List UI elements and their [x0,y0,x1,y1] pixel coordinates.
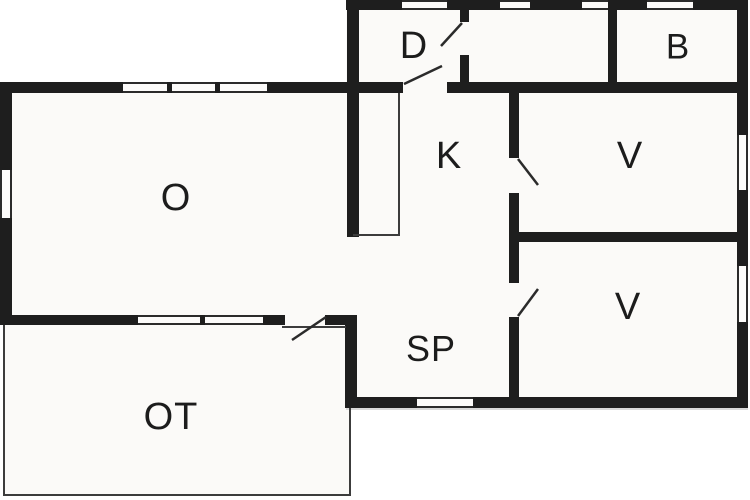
floor-plan: O OT SP K D B V V [0,0,750,500]
wall-mid-vertical [347,0,359,237]
room-label-sp: SP [406,331,456,367]
window-o-bottom-1 [138,315,200,325]
window-v-upper-right [737,135,748,190]
window-o-bottom-2 [205,315,263,325]
closet-right-edge [398,93,400,235]
window-top-1 [402,0,447,10]
closet-bottom-edge [353,234,400,236]
room-label-b: B [666,30,690,65]
wall-k-v-lower [509,317,519,397]
window-o-left [0,170,12,218]
room-label-v-upper: V [617,137,643,175]
wall-right [737,0,748,408]
wall-bottom [346,397,748,408]
window-top-4 [647,0,693,10]
room-label-o: O [161,179,192,217]
window-top-3 [582,0,608,10]
room-label-v-lower: V [615,288,641,326]
wall-b-west [608,10,617,83]
ot-wall-left [3,325,5,496]
ot-wall-right [349,408,351,496]
window-o-top-2 [172,82,215,93]
window-o-top-1 [123,82,167,93]
ot-wall-bottom [3,494,351,496]
wall-shadow [346,408,748,410]
wall-k-v-upper [509,93,519,158]
window-o-top-3 [220,82,267,93]
wall-mid-band-east [447,82,748,93]
room-label-d: D [400,27,428,65]
window-sp-bottom [417,397,473,408]
wall-v-divider [509,232,748,242]
wall-d-east-lower-stub [460,55,469,83]
room-label-ot: OT [144,398,199,436]
wall-k-v-middle [509,193,519,283]
window-top-2 [500,0,530,10]
window-v-lower-right [737,266,748,322]
room-label-k: K [436,137,462,175]
ot-door-threshold [282,326,346,328]
wall-sp-ot [345,315,357,408]
wall-d-east-upper-stub [460,10,469,22]
